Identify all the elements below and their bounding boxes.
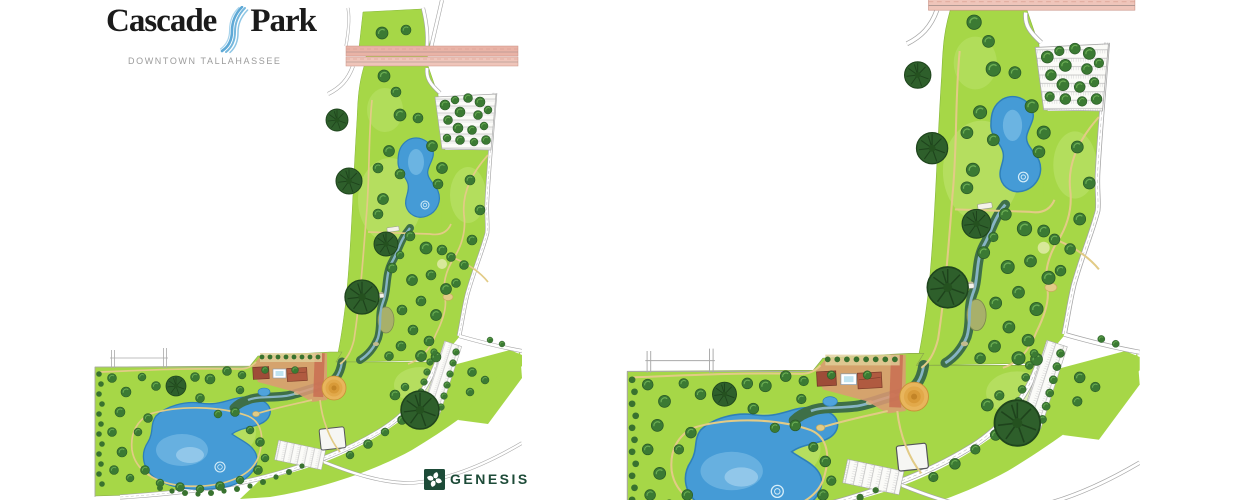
waterfall-icon: [219, 6, 249, 54]
scanned-plan-page: Cascade Park DOWNTOWN TALLAHASSEE: [0, 0, 1235, 500]
site-plan-overview-map: [90, 0, 522, 500]
logo-word-park: Park: [250, 6, 316, 36]
overview-plan-svg: [90, 0, 522, 500]
genesis-logo: GENESIS: [424, 467, 530, 491]
genesis-pinwheel-icon: [424, 469, 445, 490]
site-plan-enlarged-map: [621, 0, 1140, 500]
logo-tagline: DOWNTOWN TALLAHASSEE: [128, 56, 356, 66]
genesis-name: GENESIS: [450, 471, 530, 487]
enlarged-plan-svg: [621, 0, 1140, 500]
cascade-park-logo: Cascade Park DOWNTOWN TALLAHASSEE: [106, 6, 356, 58]
logo-word-cascade: Cascade: [106, 6, 216, 36]
